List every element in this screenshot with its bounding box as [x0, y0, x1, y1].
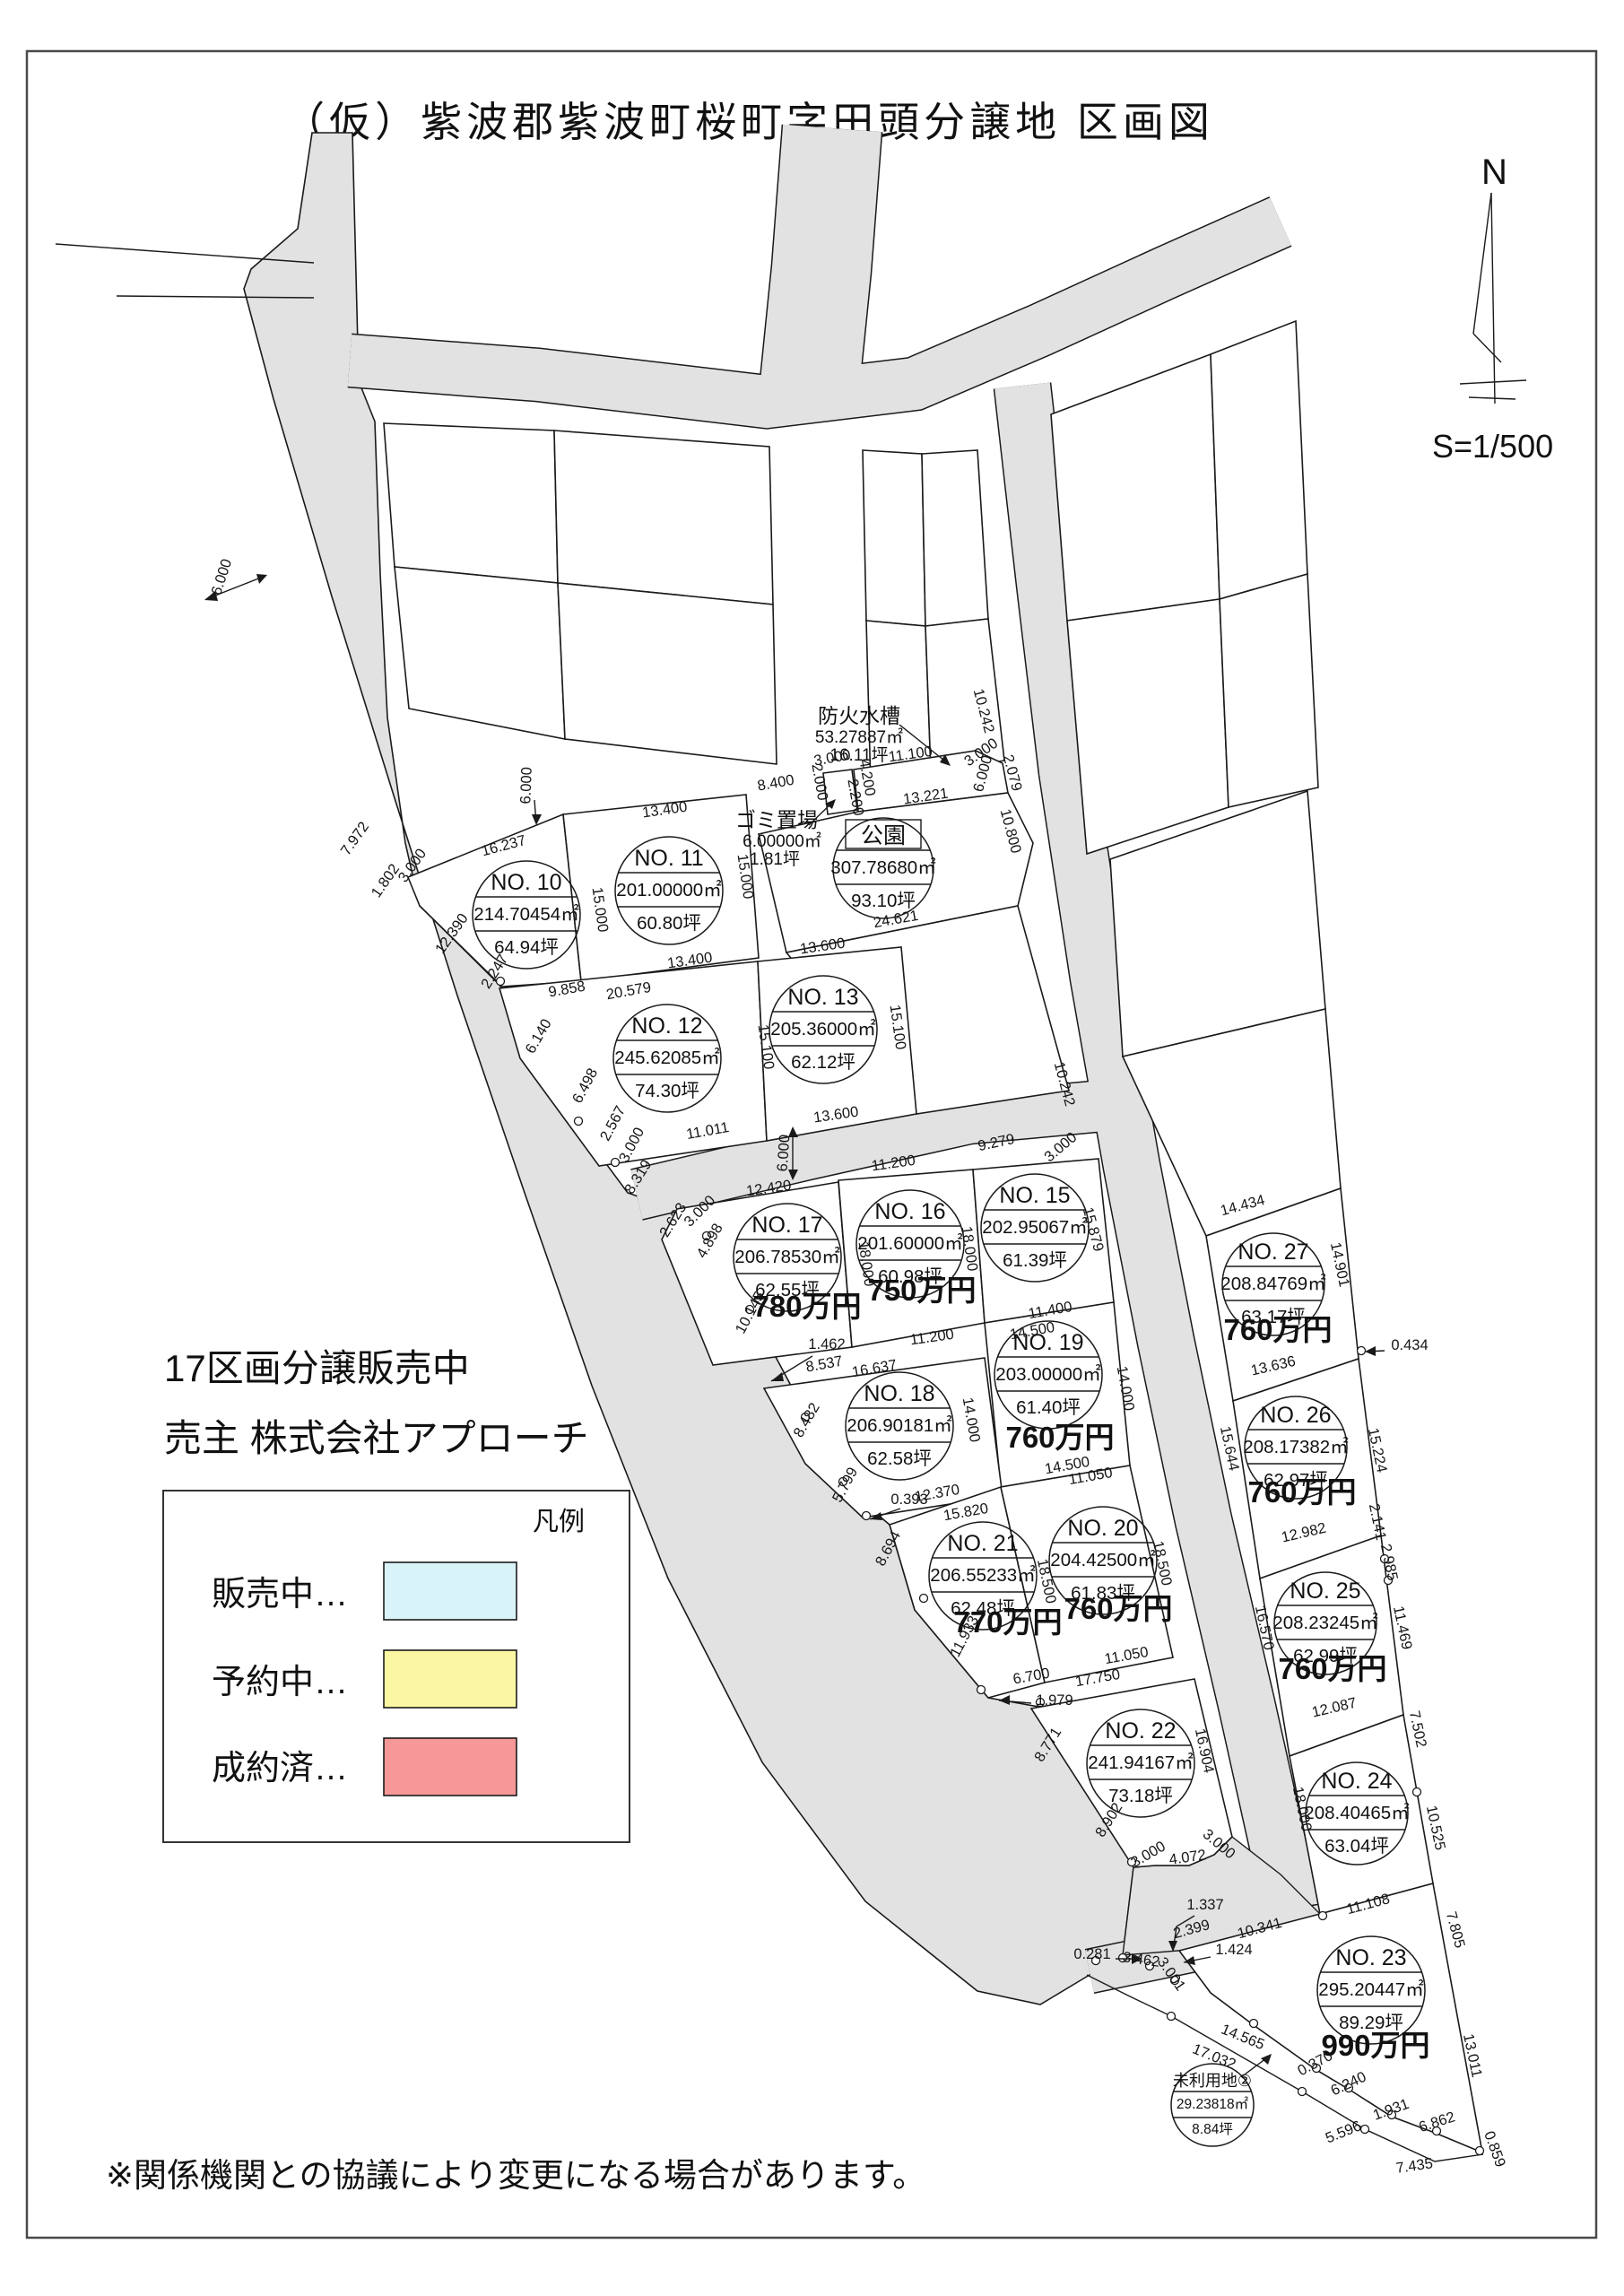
dimension-label: 7.435 [1395, 2155, 1434, 2177]
lot-number: NO. 18 [864, 1381, 934, 1406]
garbage-label: ゴミ置場 [735, 808, 818, 831]
legend-title: 凡例 [533, 1507, 585, 1536]
lot-area: 201.60000㎡ [857, 1232, 962, 1254]
dimension-label: 8.400 [756, 772, 795, 795]
lot-price: 760万円 [1278, 1652, 1386, 1685]
dimension-label: 0.281 [1073, 1946, 1110, 1962]
lot-area: 206.90181㎡ [847, 1414, 951, 1436]
dimension-label: 1.462 [808, 1336, 845, 1352]
lot-tsubo: 62.12坪 [791, 1052, 855, 1073]
dimension-label: 8.537 [804, 1353, 844, 1376]
lot-number: NO. 10 [491, 870, 561, 895]
dimension-label: 1.337 [1186, 1897, 1223, 1913]
north-arrow-kick [1473, 334, 1501, 362]
lot-price: 760万円 [1005, 1421, 1114, 1454]
lot-area: 208.17382㎡ [1243, 1436, 1348, 1457]
white-lot [395, 567, 565, 739]
lot-number: NO. 21 [947, 1531, 1018, 1556]
stamp-no10: NO. 10214.70454㎡64.94坪 [473, 861, 580, 969]
lot-number: 公園 [861, 823, 906, 848]
legend: 凡例 販売中… 予約中… 成約済… [163, 1491, 630, 1842]
lot-number: NO. 20 [1067, 1516, 1138, 1541]
legend-label-reserved: 予約中… [212, 1664, 348, 1701]
lot-tsubo: 61.40坪 [1016, 1397, 1081, 1418]
lot-number: 未利用地② [1173, 2072, 1252, 2090]
lot-number: NO. 16 [874, 1199, 945, 1224]
lot-area: 241.94167㎡ [1088, 1752, 1193, 1773]
firewater-tank-label: 防火水槽 [818, 704, 900, 727]
dimension-label: 1.802 [369, 861, 403, 900]
lot-tsubo: 73.18坪 [1108, 1786, 1173, 1806]
lot-tsubo: 60.80坪 [637, 913, 701, 934]
footer-note: ※関係機関との協議により変更になる場合があります。 [106, 2157, 925, 2194]
lot-price: 760万円 [1064, 1592, 1172, 1625]
lot-price: 990万円 [1321, 2029, 1429, 2062]
firewater-tank-area: 53.27887㎡ [815, 726, 903, 747]
north-arrow-slant [1473, 193, 1491, 334]
lot-number: NO. 13 [787, 985, 858, 1010]
lot-area: 208.40465㎡ [1304, 1802, 1409, 1823]
stamp-no24: NO. 24208.40465㎡63.04坪 [1304, 1762, 1409, 1865]
legend-label-sold: 成約済… [212, 1750, 348, 1787]
lot-number: NO. 26 [1260, 1403, 1331, 1428]
lot-area: 206.55233㎡ [930, 1564, 1035, 1586]
stamp-unused: 未利用地②29.23818㎡8.84坪 [1171, 2064, 1254, 2146]
dimension-label: 3.000 [812, 747, 852, 770]
lot-number: NO. 19 [1012, 1330, 1083, 1355]
north-label: N [1481, 152, 1507, 192]
dimension-label: 5.596 [1324, 2118, 1364, 2146]
north-arrow-tick2 [1469, 397, 1515, 399]
plat-map-canvas: （仮）紫波郡紫波町桜町字田頭分譲地 区画図 N S=1/500 [0, 0, 1624, 2296]
stamp-no18: NO. 18206.90181㎡62.58坪 [846, 1372, 953, 1480]
lot-price: 750万円 [867, 1274, 976, 1307]
lot-number: NO. 27 [1238, 1239, 1308, 1265]
white-lot [1067, 599, 1229, 854]
lot-number: NO. 11 [634, 846, 703, 871]
lot-number: NO. 17 [751, 1213, 822, 1238]
lot-tsubo: 63.04坪 [1324, 1836, 1389, 1857]
lot-price: 770万円 [953, 1605, 1062, 1639]
white-lot [922, 450, 988, 626]
stamp-no20: NO. 20204.42500㎡61.83坪760万円 [1049, 1507, 1173, 1625]
info-line2: 売主 株式会社アプローチ [164, 1417, 589, 1459]
garbage-tsubo: 1.81坪 [750, 849, 800, 869]
dimension-label: 7.972 [338, 819, 372, 858]
dimension-label: 6.000 [517, 767, 534, 804]
north-arrow: N [1460, 152, 1526, 404]
lot-area: 204.42500㎡ [1050, 1549, 1155, 1570]
lot-number: NO. 23 [1335, 1945, 1406, 1970]
lot-number: NO. 22 [1105, 1718, 1176, 1744]
stamp-no22: NO. 22241.94167㎡73.18坪 [1087, 1709, 1194, 1817]
dimension-label: 0.859 [1481, 2129, 1508, 2170]
white-lot [863, 450, 925, 626]
legend-swatch-on-sale [384, 1562, 517, 1620]
garbage-area: 6.00000㎡ [743, 831, 821, 851]
lot-area: 29.23818㎡ [1177, 2096, 1249, 2112]
dimension-label: 1.979 [1036, 1692, 1073, 1709]
legend-swatch-reserved [384, 1650, 517, 1708]
north-arrow-shaft [1491, 193, 1495, 404]
lot-area: 245.62085㎡ [614, 1047, 719, 1068]
dimension-label: 7.805 [1443, 1909, 1468, 1950]
north-arrow-tick1 [1460, 380, 1526, 384]
dimension-label: 1.424 [1215, 1942, 1252, 1958]
lot-area: 206.78530㎡ [734, 1246, 839, 1267]
white-lot [1220, 574, 1318, 807]
stamp-no11: NO. 11201.00000㎡60.80坪 [615, 837, 723, 944]
lot-area: 203.00000㎡ [995, 1363, 1100, 1385]
lot-area: 208.84769㎡ [1220, 1273, 1325, 1294]
lot-area: 205.36000㎡ [770, 1018, 875, 1039]
lot-area: 307.78680㎡ [830, 857, 935, 878]
lot-tsubo: 93.10坪 [851, 891, 916, 911]
lot-area: 201.00000㎡ [616, 879, 721, 900]
stamp-no15: NO. 15202.95067㎡61.39坪 [981, 1174, 1089, 1282]
lot-area: 214.70454㎡ [473, 903, 578, 925]
lot-area: 208.23245㎡ [1272, 1612, 1377, 1633]
lot-area: 295.20447㎡ [1318, 1979, 1423, 2000]
stamp-no13: NO. 13205.36000㎡62.12坪 [769, 976, 877, 1083]
scale-label: S=1/500 [1432, 428, 1553, 465]
lot-price: 780万円 [752, 1290, 861, 1323]
info-line1: 17区画分譲販売中 [164, 1347, 470, 1389]
dimension-label: 0.434 [1391, 1337, 1428, 1353]
dimension-label: 7.502 [1406, 1709, 1429, 1749]
lot-tsubo: 62.58坪 [867, 1448, 932, 1469]
white-lot [384, 423, 558, 583]
lot-number: NO. 12 [631, 1013, 702, 1039]
lot-tsubo: 8.84坪 [1192, 2121, 1233, 2137]
white-lot [558, 583, 777, 764]
dimension-label: 6.000 [208, 557, 235, 597]
lot-tsubo: 74.30坪 [635, 1081, 699, 1101]
dimension-label: 6.000 [775, 1134, 794, 1171]
lot-area: 202.95067㎡ [982, 1216, 1087, 1238]
white-lot [1211, 321, 1307, 599]
plat-map-page: （仮）紫波郡紫波町桜町字田頭分譲地 区画図 N S=1/500 [0, 0, 1624, 2296]
lot-number: NO. 15 [999, 1183, 1070, 1208]
lot-tsubo: 64.94坪 [494, 937, 559, 958]
lot-number: NO. 24 [1321, 1769, 1392, 1794]
dimension-label: 2.000 [808, 762, 830, 802]
lot-price: 760万円 [1247, 1475, 1356, 1509]
stamp-no12: NO. 12245.62085㎡74.30坪 [613, 1004, 721, 1112]
lot-price: 760万円 [1223, 1313, 1332, 1346]
white-lot [554, 430, 773, 604]
legend-label-on-sale: 販売中… [212, 1576, 348, 1613]
lot-number: NO. 25 [1290, 1578, 1360, 1604]
lot-tsubo: 61.39坪 [1003, 1250, 1067, 1271]
white-lot [1051, 354, 1220, 621]
legend-swatch-sold [384, 1738, 517, 1796]
page-title: （仮）紫波郡紫波町桜町字田頭分譲地 区画図 [283, 99, 1214, 145]
